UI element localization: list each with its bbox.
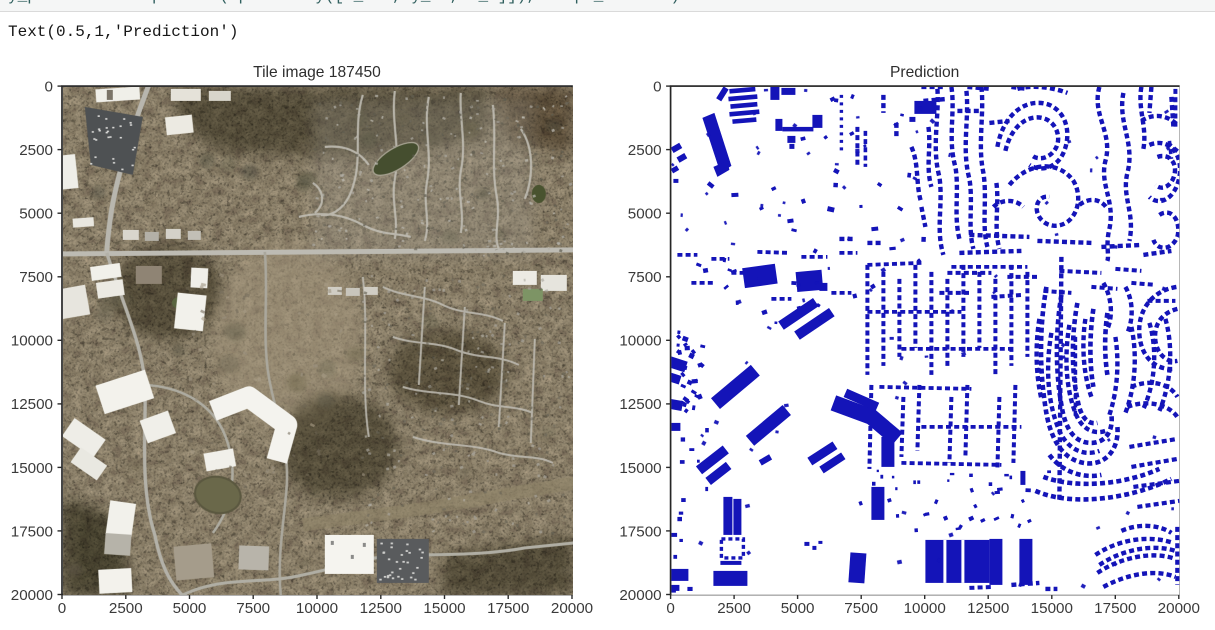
svg-text:12500: 12500 (11, 396, 53, 413)
svg-text:12500: 12500 (619, 396, 661, 413)
svg-text:15000: 15000 (11, 460, 53, 477)
svg-text:20000: 20000 (619, 587, 661, 604)
svg-text:2500: 2500 (717, 600, 751, 617)
svg-text:17500: 17500 (11, 523, 53, 540)
svg-text:5000: 5000 (781, 600, 815, 617)
svg-text:15000: 15000 (619, 460, 661, 477)
svg-text:2500: 2500 (109, 600, 143, 617)
svg-text:10000: 10000 (296, 600, 338, 617)
svg-text:Prediction: Prediction (890, 64, 959, 81)
svg-text:20000: 20000 (551, 600, 593, 617)
svg-text:15000: 15000 (1031, 600, 1073, 617)
svg-text:7500: 7500 (628, 269, 662, 286)
svg-text:2500: 2500 (19, 142, 53, 159)
svg-text:7500: 7500 (844, 600, 878, 617)
svg-text:7500: 7500 (19, 269, 53, 286)
svg-text:12500: 12500 (360, 600, 402, 617)
svg-text:0: 0 (666, 600, 674, 617)
svg-text:17500: 17500 (619, 523, 661, 540)
svg-text:0: 0 (58, 600, 66, 617)
svg-text:0: 0 (653, 79, 661, 96)
svg-text:10000: 10000 (11, 333, 53, 350)
svg-text:5000: 5000 (628, 206, 662, 223)
svg-text:10000: 10000 (904, 600, 946, 617)
svg-text:20000: 20000 (1158, 600, 1200, 617)
svg-text:12500: 12500 (967, 600, 1009, 617)
svg-text:17500: 17500 (487, 600, 529, 617)
svg-text:10000: 10000 (619, 333, 661, 350)
svg-text:2500: 2500 (628, 142, 662, 159)
svg-text:20000: 20000 (11, 587, 53, 604)
svg-text:Tile image 187450: Tile image 187450 (253, 64, 381, 81)
svg-text:15000: 15000 (423, 600, 465, 617)
svg-text:5000: 5000 (173, 600, 207, 617)
svg-text:5000: 5000 (19, 206, 53, 223)
svg-text:7500: 7500 (236, 600, 270, 617)
svg-text:0: 0 (45, 79, 53, 96)
svg-text:17500: 17500 (1094, 600, 1136, 617)
